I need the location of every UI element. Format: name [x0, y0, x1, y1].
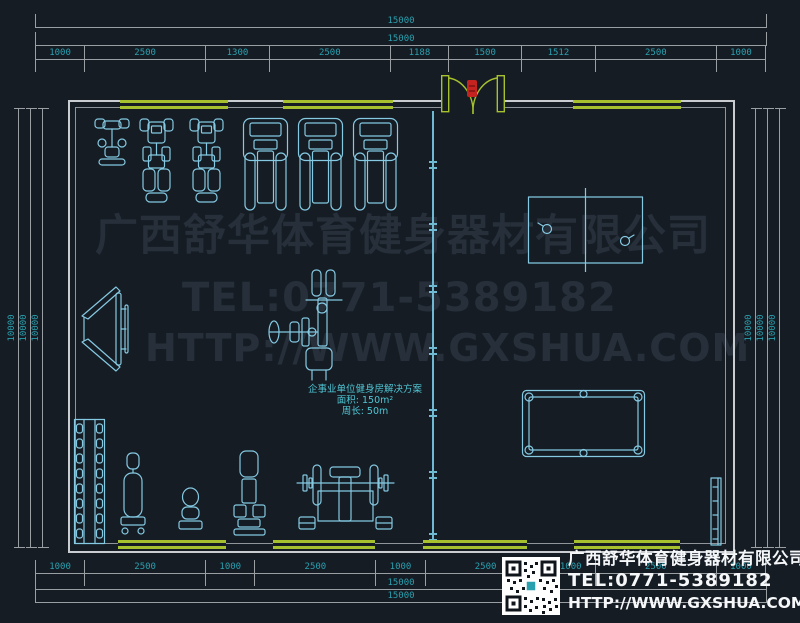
exercise-bike: [93, 117, 131, 169]
dim-label: 2500: [85, 562, 205, 572]
seated-machine: [232, 449, 267, 539]
stool: [177, 487, 204, 537]
floor-label-area: 面积: 150m²: [295, 395, 435, 406]
window-segment: [283, 100, 393, 109]
treadmill: [352, 117, 399, 213]
dim-label: 1188: [391, 48, 448, 58]
dim-left: 100001000010000: [14, 108, 48, 548]
dim-label: 1300: [206, 48, 268, 58]
window-segment: [118, 540, 226, 549]
dim-label: 1000: [717, 48, 765, 58]
dim-segment: 1000: [716, 46, 765, 72]
dim-top-total-outer: 15000: [35, 14, 767, 28]
dim-label: 10000: [756, 312, 766, 343]
dim-label: 10000: [768, 312, 778, 343]
bench-press-station: [296, 461, 395, 534]
dim-label: 10000: [744, 312, 754, 343]
dim-segment: 2500: [269, 46, 390, 72]
floor-label-perimeter: 周长: 50m: [295, 406, 435, 417]
wall-bench: [710, 477, 723, 546]
dim-label: 2500: [255, 562, 375, 572]
dim-segment: 1512: [521, 46, 595, 72]
dim-vertical-line: 10000: [42, 108, 43, 548]
dim-top-segments: 100025001300250011881500151225001000: [35, 46, 766, 72]
window-segment: [120, 100, 228, 109]
dim-segment: 1188: [390, 46, 448, 72]
recumbent-bike: [189, 117, 224, 205]
dim-segment: 1000: [35, 46, 84, 72]
dim-vertical-line: 10000: [779, 108, 780, 548]
dim-label: 10000: [7, 312, 17, 343]
dim-label: 10000: [19, 312, 29, 343]
legend: 广西舒华体育健身器材有限公司 TEL:0771-5389182 HTTP://W…: [502, 548, 800, 615]
floor-label: 企事业单位健身房解决方案 面积: 150m² 周长: 50m: [295, 384, 435, 417]
qr-code-icon: [502, 557, 560, 615]
multi-station-machine: [266, 268, 374, 382]
legend-url: HTTP://WWW.GXSHUA.COM: [568, 592, 800, 614]
dim-label: 15000: [36, 34, 766, 44]
treadmill: [297, 117, 344, 213]
dim-label: 2500: [596, 48, 716, 58]
billiard-table: [521, 389, 646, 458]
dim-label: 10000: [31, 312, 41, 343]
dim-label: 1000: [376, 562, 424, 572]
dim-label: 1512: [522, 48, 595, 58]
cad-canvas: 广西舒华体育健身器材有限公司 TEL:0771-5389182 HTTP://W…: [0, 0, 800, 623]
dim-label: 1000: [36, 48, 84, 58]
dim-segment: 2500: [595, 46, 716, 72]
dim-top-total-inner: 15000: [35, 32, 767, 46]
dim-label: 2500: [270, 48, 390, 58]
window-segment: [273, 540, 375, 549]
dim-segment: 1300: [205, 46, 268, 72]
legend-tel: TEL:0771-5389182: [568, 570, 800, 592]
adjustable-bench: [118, 451, 149, 538]
dim-segment: 1500: [448, 46, 521, 72]
door-symbol-icon: [466, 79, 478, 98]
window-segment: [573, 100, 681, 109]
sit-up-board: [76, 283, 130, 375]
floor-label-title: 企事业单位健身房解决方案: [295, 384, 435, 395]
dim-label: 1000: [36, 562, 84, 572]
dim-label: 15000: [36, 16, 766, 26]
treadmill: [242, 117, 289, 213]
partition-line: [432, 111, 434, 542]
dim-label: 1000: [206, 562, 254, 572]
dumbbell-rack: [73, 418, 106, 545]
dim-segment: 2500: [84, 46, 205, 72]
legend-text: 广西舒华体育健身器材有限公司 TEL:0771-5389182 HTTP://W…: [568, 548, 800, 614]
recumbent-bike: [139, 117, 174, 205]
dim-right: 100001000010000: [751, 108, 785, 548]
table-tennis-table: [527, 188, 644, 272]
dim-label: 2500: [85, 48, 205, 58]
legend-company: 广西舒华体育健身器材有限公司: [568, 548, 800, 570]
dim-label: 1500: [449, 48, 521, 58]
